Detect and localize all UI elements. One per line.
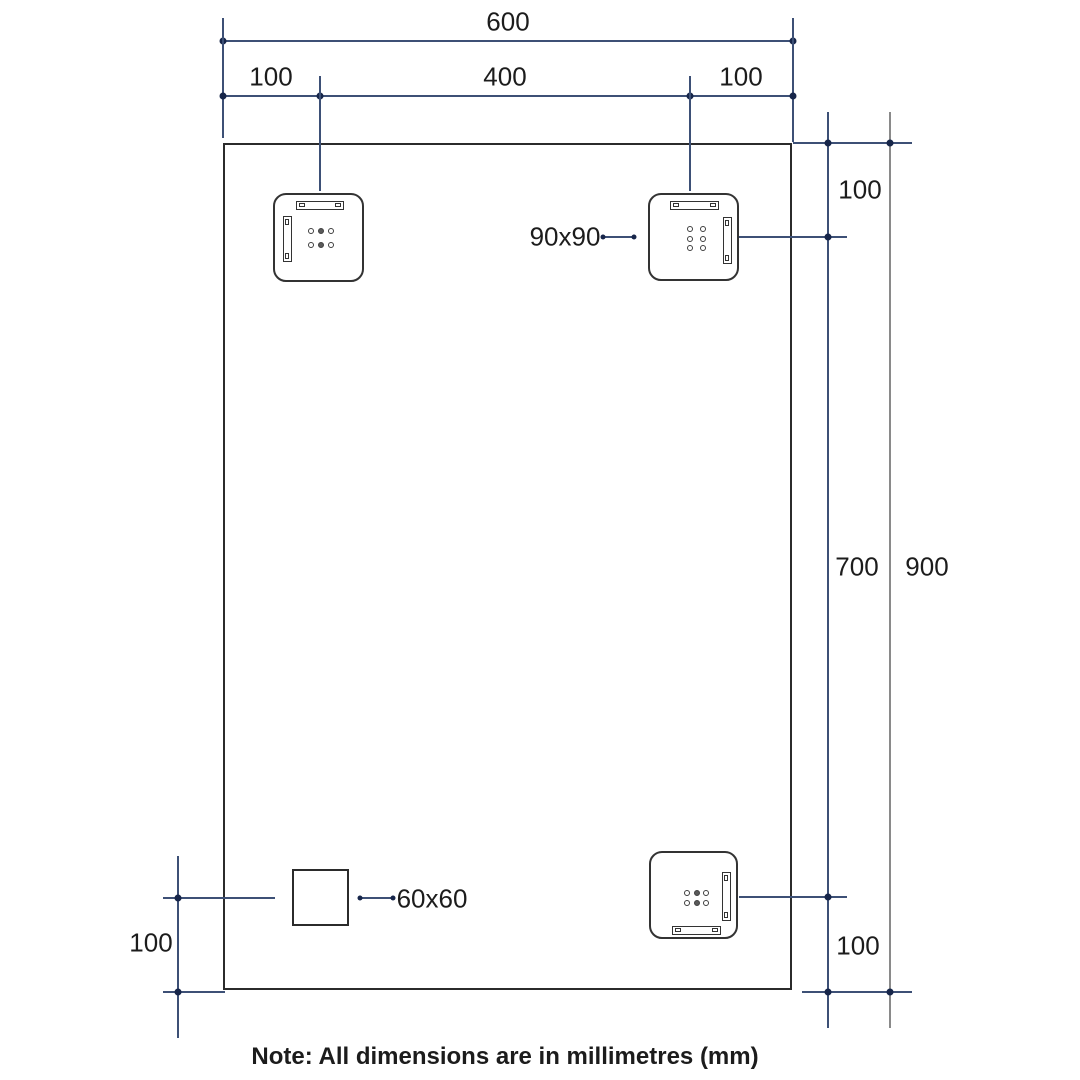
slot-end-cap	[725, 220, 729, 226]
dim-label-right-bottom-offset: 100	[836, 931, 879, 962]
mounting-bracket-bottom-right	[649, 851, 738, 939]
bracket-hole	[308, 242, 314, 248]
bracket-hole	[694, 900, 700, 906]
label-square-size: 60x60	[397, 884, 468, 915]
extension-line-bottom-edge	[802, 991, 912, 993]
bracket-hole	[684, 890, 690, 896]
dim-dot	[220, 93, 227, 100]
dim-dot	[825, 234, 832, 241]
extension-line-top-edge	[793, 142, 912, 144]
dim-line-overall-width	[223, 40, 793, 42]
dim-label-right-top-offset: 100	[838, 175, 881, 206]
leader-dot	[632, 235, 637, 240]
dim-dot	[887, 140, 894, 147]
bracket-hole	[687, 245, 693, 251]
leader-line-bracket-size	[603, 236, 634, 238]
bracket-slot-vertical	[283, 216, 292, 262]
bracket-hole	[687, 226, 693, 232]
dim-line-bottom-left	[177, 856, 179, 1038]
bracket-hole	[700, 236, 706, 242]
slot-end-cap	[673, 203, 679, 207]
slot-end-cap	[285, 219, 289, 225]
slot-end-cap	[710, 203, 716, 207]
slot-end-cap	[725, 255, 729, 261]
bracket-slot-horizontal	[670, 201, 719, 210]
slot-end-cap	[675, 928, 681, 932]
bracket-slot-horizontal	[296, 201, 344, 210]
bracket-hole	[318, 242, 324, 248]
slot-end-cap	[712, 928, 718, 932]
slot-end-cap	[724, 875, 728, 881]
slot-end-cap	[724, 912, 728, 918]
dim-dot	[825, 989, 832, 996]
dim-dot	[175, 989, 182, 996]
dim-dot	[175, 895, 182, 902]
extension-line-right-bracket-center	[689, 76, 691, 191]
extension-line-bottom-left-edge	[163, 991, 225, 993]
dim-label-overall-width: 600	[486, 7, 529, 38]
bracket-hole	[700, 226, 706, 232]
bracket-hole	[703, 900, 709, 906]
dim-label-overall-height: 900	[905, 552, 948, 583]
leader-dot	[391, 896, 396, 901]
extension-line-right-edge	[792, 18, 794, 142]
bracket-hole	[328, 228, 334, 234]
dim-dot	[887, 989, 894, 996]
bracket-hole	[700, 245, 706, 251]
dim-dot	[825, 140, 832, 147]
dim-label-right-mid-span: 700	[835, 552, 878, 583]
dim-label-top-right-offset: 100	[719, 62, 762, 93]
bracket-hole	[687, 236, 693, 242]
dim-dot	[790, 93, 797, 100]
label-bracket-size: 90x90	[530, 222, 601, 253]
dim-line-right-segments	[827, 112, 829, 1028]
dim-label-bottom-left-offset: 100	[129, 928, 172, 959]
dim-line-overall-height	[889, 112, 891, 1028]
bracket-hole	[684, 900, 690, 906]
leader-line-square-size	[360, 897, 393, 899]
extension-line-left-edge	[222, 18, 224, 138]
slot-end-cap	[335, 203, 341, 207]
bracket-slot-vertical	[723, 217, 732, 264]
bracket-slot-vertical	[722, 872, 731, 921]
dim-label-top-center-span: 400	[483, 62, 526, 93]
bracket-hole	[328, 242, 334, 248]
bracket-hole	[318, 228, 324, 234]
dim-dot	[825, 894, 832, 901]
bracket-hole	[703, 890, 709, 896]
mounting-bracket-top-right	[648, 193, 739, 281]
dim-line-top-segments	[223, 95, 793, 97]
leader-dot	[601, 235, 606, 240]
leader-dot	[358, 896, 363, 901]
mounting-bracket-top-left	[273, 193, 364, 282]
bracket-slot-horizontal	[672, 926, 721, 935]
slot-end-cap	[299, 203, 305, 207]
bracket-hole	[694, 890, 700, 896]
bracket-hole	[308, 228, 314, 234]
dim-label-top-left-offset: 100	[249, 62, 292, 93]
units-note: Note: All dimensions are in millimetres …	[251, 1043, 758, 1071]
square-block-60x60	[292, 869, 349, 926]
slot-end-cap	[285, 253, 289, 259]
extension-line-left-bracket-center	[319, 76, 321, 191]
drawing-canvas: 600 100 400 100 100 700 900 100 100 90x9…	[0, 0, 1080, 1080]
